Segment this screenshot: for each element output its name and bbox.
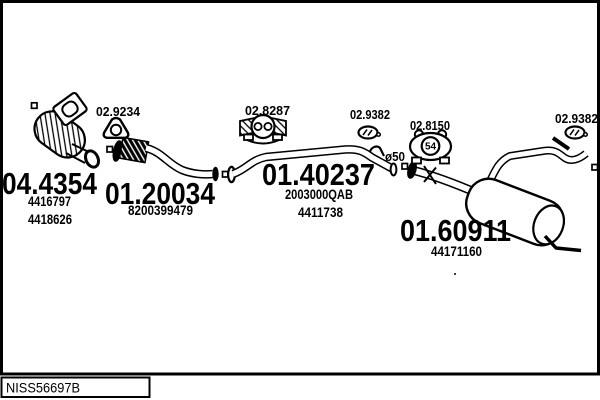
fitting-code-clamp-mid[interactable]: 02.9382 [350,107,390,122]
part-ref: 4411738 [298,205,343,220]
mount-square-icon [592,165,598,171]
part-ref: 2003000QAB [285,187,353,202]
pipe-diameter-label: ø50 [385,149,405,164]
part-ref: 8200399479 [128,203,193,218]
mount-square-icon [32,103,38,109]
part-ref: 4416797 [28,194,71,209]
mount-square-icon [402,164,408,170]
fitting-code-gasket[interactable]: 02.9234 [96,104,141,119]
hanger-size-marking: 54 [425,142,437,153]
exhaust-diagram: NISS56697B ø50 [0,0,600,400]
drawing-number: NISS56697B [6,381,80,396]
fitting-code-clamp-rear[interactable]: 02.9382 [555,111,598,126]
part-ref: 44171160 [431,244,482,259]
rubber-hanger-icon: 54 [410,130,451,163]
part-code-rear-muffler[interactable]: 01.60911 [400,213,511,248]
fitting-code-hanger[interactable]: 02.8150 [410,118,450,133]
mount-square-icon [107,147,113,153]
parts-diagram-canvas: NISS56697B ø50 [0,0,600,400]
speck [454,273,456,275]
fitting-code-clamp-bracket[interactable]: 02.8287 [245,103,290,118]
part-ref: 4418626 [28,212,72,227]
